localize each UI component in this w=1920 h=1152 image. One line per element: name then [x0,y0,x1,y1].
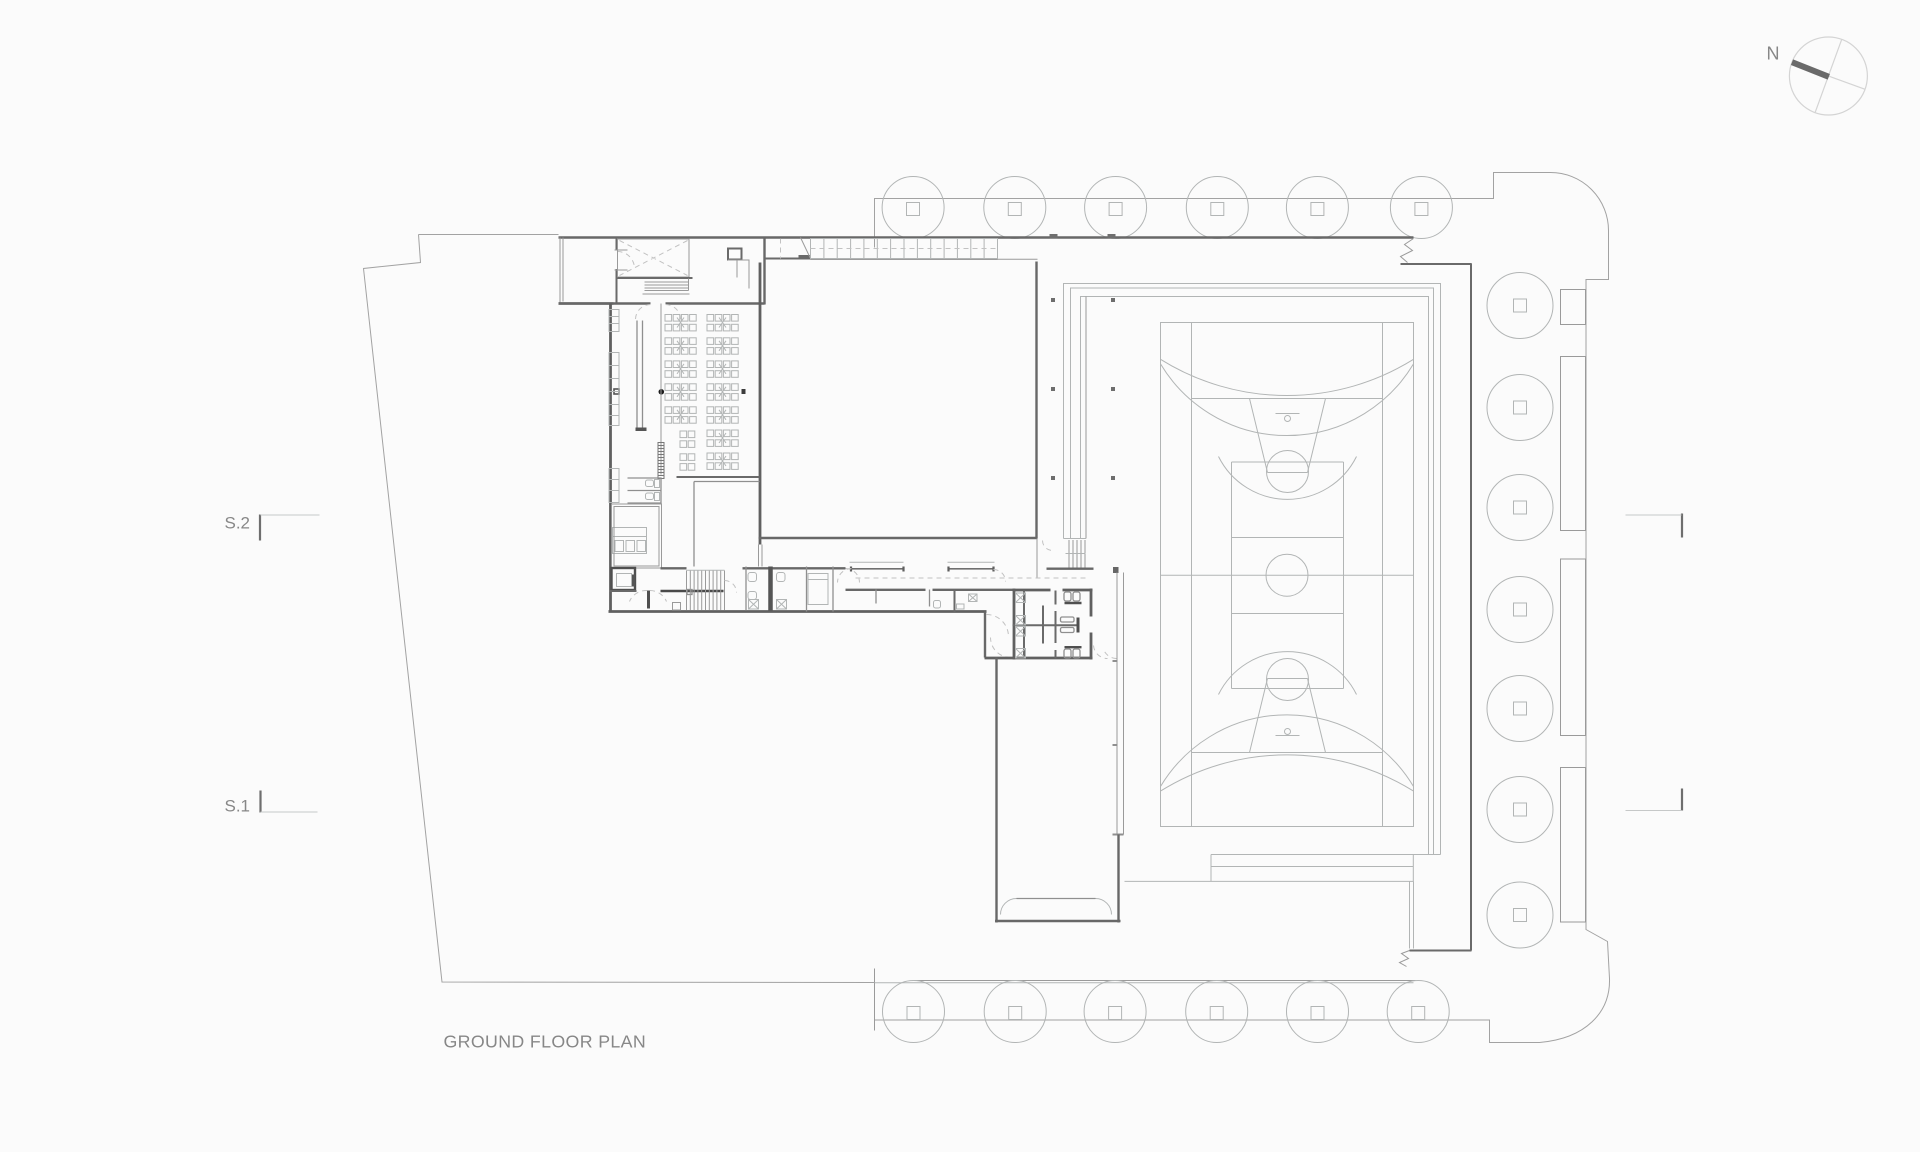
svg-text:S.2: S.2 [225,514,251,533]
svg-text:S.1: S.1 [225,797,251,816]
svg-text:GROUND FLOOR PLAN: GROUND FLOOR PLAN [444,1032,647,1052]
svg-text:N: N [1767,44,1780,64]
